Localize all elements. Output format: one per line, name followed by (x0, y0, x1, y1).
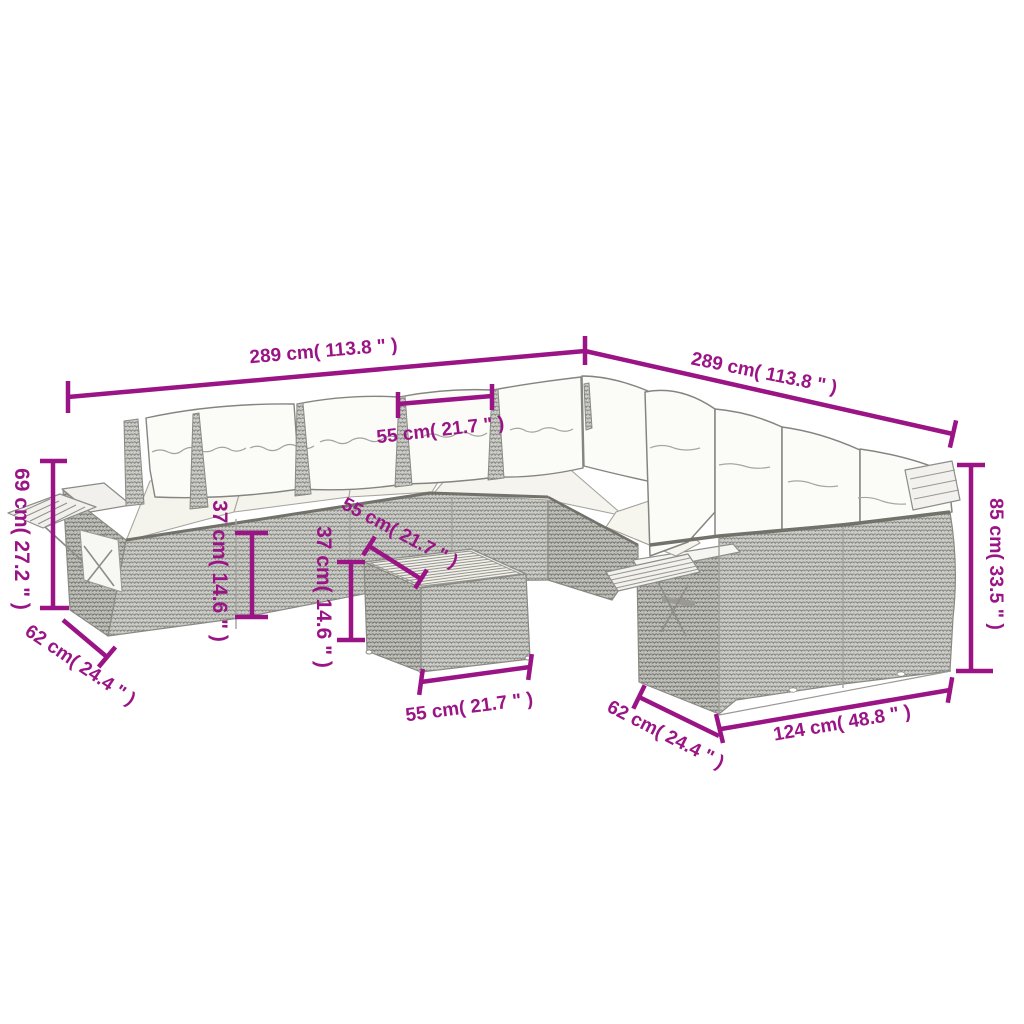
svg-text:69 cm( 27.2 " ): 69 cm( 27.2 " ) (10, 468, 33, 610)
svg-text:37 cm( 14.6 " ): 37 cm( 14.6 " ) (312, 526, 335, 668)
svg-text:37 cm( 14.6 " ): 37 cm( 14.6 " ) (208, 500, 231, 642)
svg-text:85 cm( 33.5 " ): 85 cm( 33.5 " ) (985, 498, 1007, 630)
